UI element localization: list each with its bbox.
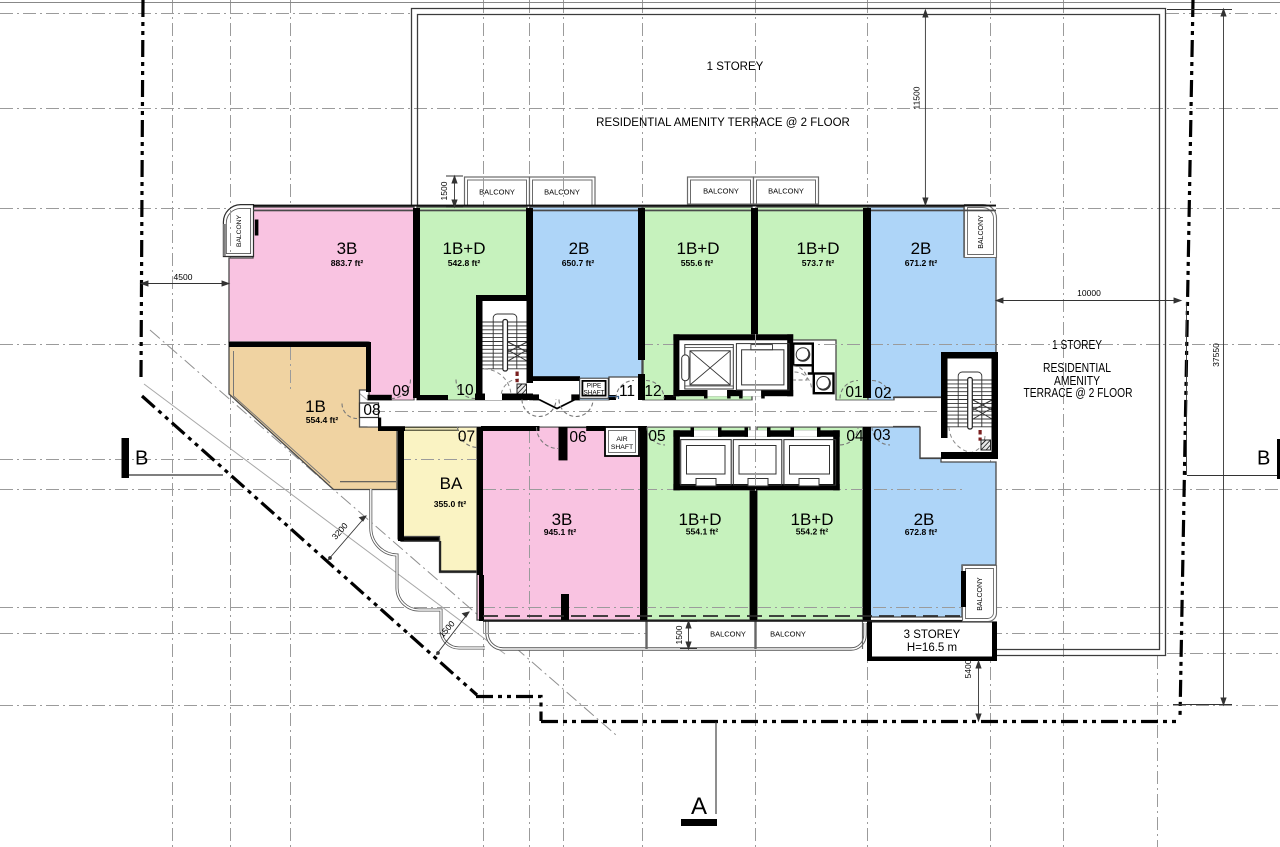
svg-text:BALCONY: BALCONY (236, 214, 243, 247)
svg-text:542.8 ft²: 542.8 ft² (448, 258, 481, 268)
svg-text:A: A (691, 793, 707, 820)
svg-text:BALCONY: BALCONY (978, 215, 985, 249)
svg-text:RESIDENTIAL AMENITY TERRACE @: RESIDENTIAL AMENITY TERRACE @ 2 FLOOR (596, 117, 850, 129)
svg-text:11500: 11500 (912, 86, 922, 109)
svg-text:10: 10 (456, 382, 474, 399)
svg-text:4500: 4500 (174, 272, 193, 282)
svg-text:BALCONY: BALCONY (703, 187, 739, 196)
svg-text:07: 07 (458, 429, 475, 446)
svg-text:3B: 3B (337, 239, 358, 258)
svg-text:02: 02 (874, 385, 891, 402)
svg-text:12: 12 (644, 383, 661, 400)
svg-text:1 STOREY: 1 STOREY (1052, 338, 1103, 352)
svg-text:TERRACE @ 2 FLOOR: TERRACE @ 2 FLOOR (1024, 386, 1133, 400)
svg-text:03: 03 (873, 427, 890, 444)
svg-text:04: 04 (846, 428, 864, 445)
svg-text:11: 11 (619, 383, 635, 400)
svg-text:3 STOREY: 3 STOREY (904, 629, 961, 641)
svg-text:B: B (1257, 448, 1270, 470)
svg-text:SHAFT: SHAFT (611, 444, 633, 451)
svg-text:2B: 2B (569, 239, 590, 258)
svg-text:BALCONY: BALCONY (544, 188, 580, 197)
svg-text:1B+D: 1B+D (443, 239, 486, 258)
svg-text:671.2 ft²: 671.2 ft² (905, 258, 938, 268)
svg-text:AIR: AIR (616, 436, 627, 443)
svg-text:554.2 ft²: 554.2 ft² (796, 527, 829, 537)
svg-text:945.1 ft²: 945.1 ft² (544, 527, 577, 537)
svg-text:SHAFT: SHAFT (584, 390, 605, 397)
svg-text:BALCONY: BALCONY (710, 630, 746, 639)
svg-text:1B+D: 1B+D (797, 239, 840, 258)
svg-text:573.7 ft²: 573.7 ft² (802, 258, 835, 268)
svg-text:555.6 ft²: 555.6 ft² (681, 258, 714, 268)
svg-text:883.7 ft²: 883.7 ft² (331, 258, 364, 268)
svg-text:BA: BA (440, 474, 463, 493)
svg-text:BALCONY: BALCONY (768, 187, 804, 196)
svg-text:BALCONY: BALCONY (977, 577, 984, 611)
svg-text:B: B (135, 448, 148, 470)
svg-text:08: 08 (363, 402, 380, 419)
svg-text:05: 05 (648, 428, 665, 445)
svg-text:10000: 10000 (1077, 288, 1101, 298)
svg-text:BALCONY: BALCONY (770, 630, 806, 639)
svg-text:5400: 5400 (963, 659, 973, 678)
svg-text:06: 06 (569, 429, 586, 446)
svg-text:554.4 ft²: 554.4 ft² (306, 415, 339, 425)
svg-text:554.1 ft²: 554.1 ft² (686, 527, 719, 537)
svg-text:1B+D: 1B+D (677, 239, 720, 258)
svg-text:RESIDENTIAL: RESIDENTIAL (1043, 361, 1111, 375)
svg-text:37550: 37550 (1211, 343, 1221, 367)
svg-text:355.0 ft²: 355.0 ft² (434, 499, 467, 509)
svg-text:2B: 2B (911, 239, 932, 258)
svg-text:1B: 1B (305, 397, 326, 416)
svg-text:1500: 1500 (674, 625, 684, 644)
svg-text:H=16.5 m: H=16.5 m (907, 642, 957, 654)
svg-text:09: 09 (392, 383, 409, 400)
svg-text:01: 01 (845, 384, 862, 401)
svg-text:1500: 1500 (439, 181, 449, 200)
svg-text:BALCONY: BALCONY (479, 188, 515, 197)
svg-text:650.7 ft²: 650.7 ft² (562, 258, 595, 268)
svg-text:1 STOREY: 1 STOREY (707, 61, 764, 73)
svg-text:PIPE: PIPE (587, 383, 602, 390)
svg-text:672.8 ft²: 672.8 ft² (905, 527, 938, 537)
